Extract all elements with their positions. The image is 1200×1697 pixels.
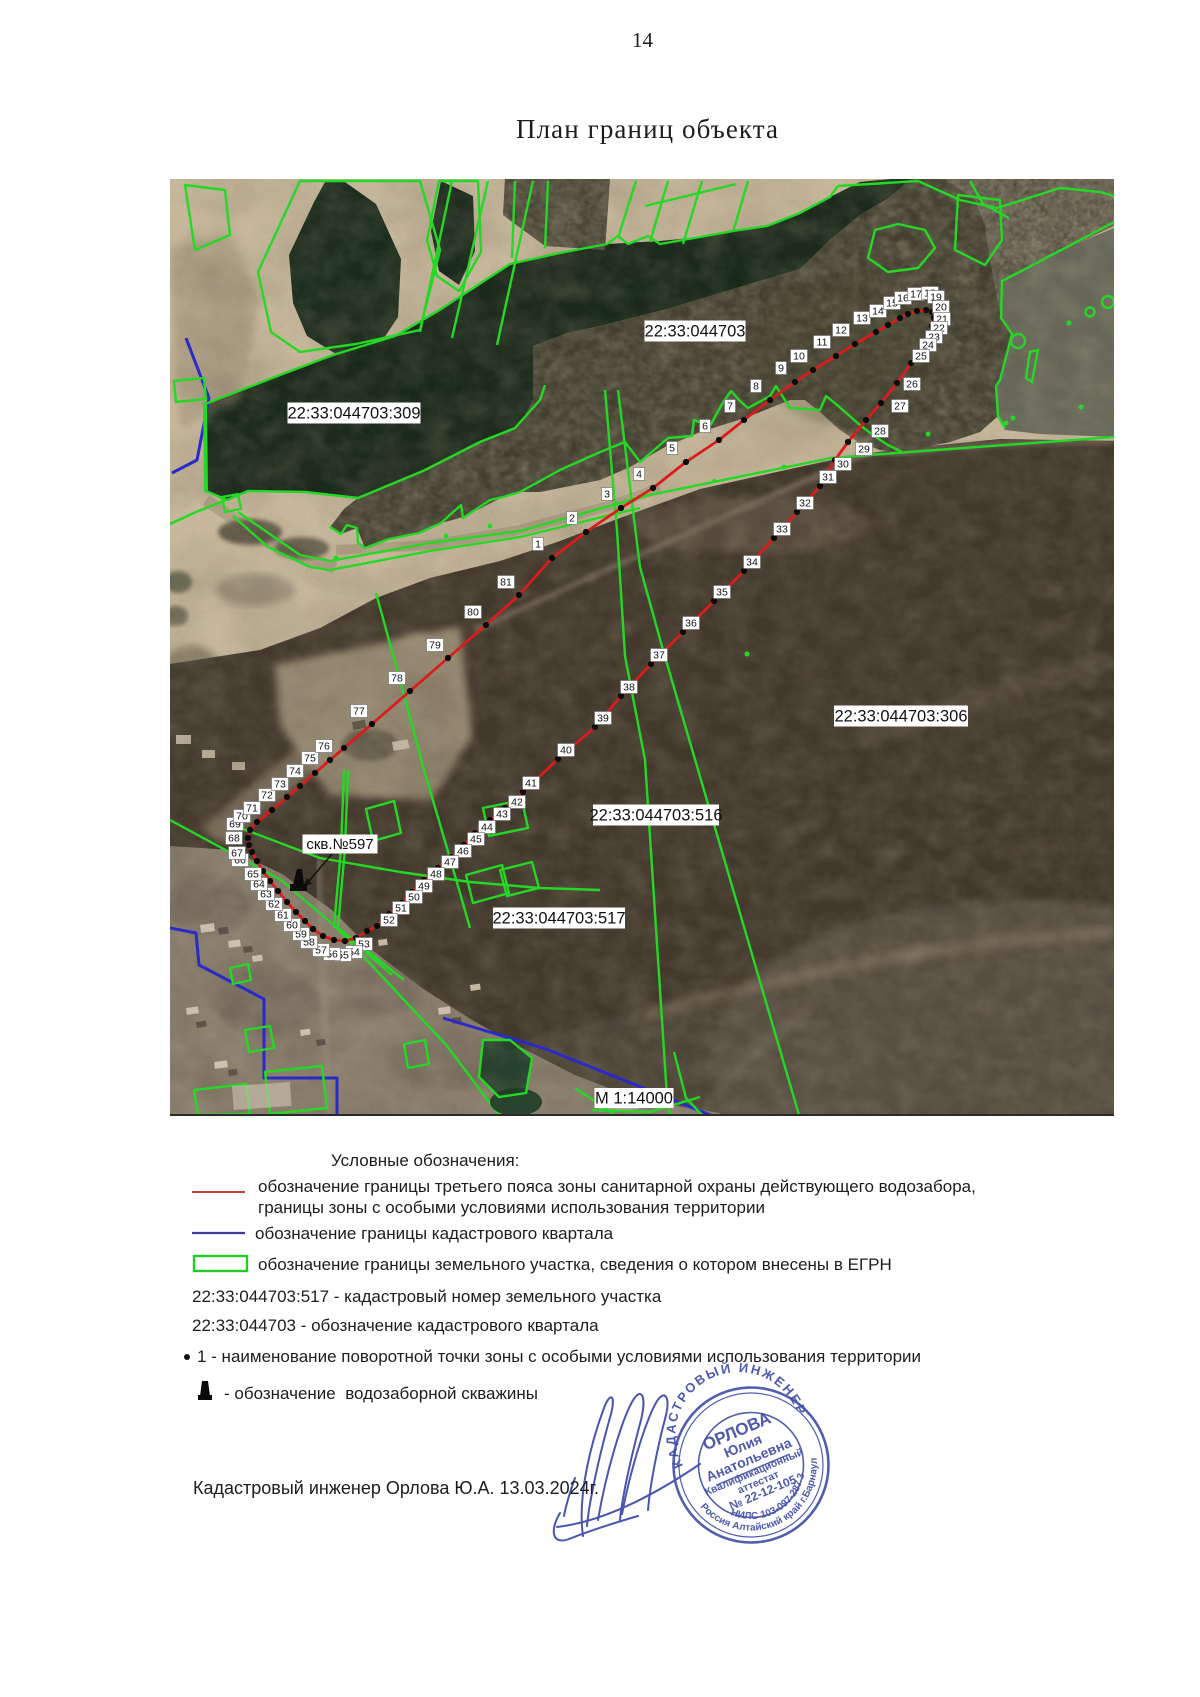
svg-text:11: 11 (817, 337, 828, 349)
svg-text:6: 6 (702, 421, 708, 433)
svg-text:9: 9 (778, 363, 784, 375)
svg-text:32: 32 (799, 498, 811, 510)
svg-text:67: 67 (231, 848, 243, 860)
svg-text:79: 79 (429, 640, 441, 652)
svg-text:73: 73 (274, 779, 286, 791)
svg-text:78: 78 (391, 673, 403, 685)
svg-text:38: 38 (623, 682, 635, 694)
svg-text:22:33:044703: 22:33:044703 (645, 323, 746, 341)
svg-text:22:33:044703:309: 22:33:044703:309 (287, 405, 420, 423)
svg-text:34: 34 (746, 557, 758, 569)
svg-text:46: 46 (457, 846, 469, 858)
svg-text:42: 42 (511, 797, 523, 809)
svg-text:41: 41 (525, 778, 537, 790)
svg-text:44: 44 (481, 822, 493, 834)
svg-text:2: 2 (569, 513, 575, 525)
svg-text:31: 31 (822, 472, 834, 484)
svg-text:26: 26 (906, 379, 918, 391)
svg-text:47: 47 (444, 857, 456, 869)
svg-text:81: 81 (500, 577, 512, 589)
svg-text:50: 50 (408, 892, 420, 904)
svg-text:33: 33 (776, 524, 788, 536)
svg-text:22:33:044703:517: 22:33:044703:517 (492, 910, 625, 928)
svg-text:20: 20 (935, 302, 947, 314)
svg-text:39: 39 (597, 713, 609, 725)
svg-text:43: 43 (496, 809, 508, 821)
svg-text:М 1:14000: М 1:14000 (595, 1090, 673, 1108)
svg-text:40: 40 (560, 745, 572, 757)
svg-text:12: 12 (835, 325, 847, 337)
svg-text:36: 36 (685, 618, 697, 630)
svg-text:22:33:044703:306: 22:33:044703:306 (834, 708, 967, 726)
svg-text:7: 7 (727, 401, 733, 413)
svg-text:52: 52 (383, 915, 395, 927)
svg-text:71: 71 (246, 803, 258, 815)
svg-text:45: 45 (470, 834, 482, 846)
svg-text:22:33:044703:516: 22:33:044703:516 (589, 807, 722, 825)
svg-text:37: 37 (653, 650, 665, 662)
svg-text:75: 75 (304, 753, 316, 765)
svg-text:8: 8 (753, 381, 759, 393)
svg-text:48: 48 (430, 869, 442, 881)
svg-text:27: 27 (894, 401, 906, 413)
svg-text:74: 74 (289, 766, 301, 778)
svg-text:14: 14 (872, 306, 884, 318)
svg-text:25: 25 (915, 351, 927, 363)
svg-text:30: 30 (837, 459, 849, 471)
svg-text:4: 4 (636, 469, 642, 481)
svg-text:28: 28 (874, 426, 886, 438)
svg-text:29: 29 (858, 444, 870, 456)
svg-text:17: 17 (910, 289, 922, 301)
svg-text:76: 76 (318, 741, 330, 753)
svg-text:65: 65 (247, 869, 259, 881)
svg-text:51: 51 (395, 903, 407, 915)
svg-text:13: 13 (856, 313, 868, 325)
svg-text:3: 3 (604, 489, 610, 501)
svg-text:1: 1 (535, 539, 541, 551)
svg-text:61: 61 (277, 910, 289, 922)
svg-text:5: 5 (669, 443, 675, 455)
svg-text:35: 35 (716, 587, 728, 599)
svg-text:10: 10 (793, 351, 805, 363)
svg-text:77: 77 (353, 706, 365, 718)
svg-text:80: 80 (467, 607, 479, 619)
svg-text:68: 68 (228, 833, 240, 845)
svg-text:скв.№597: скв.№597 (306, 836, 373, 853)
svg-text:72: 72 (261, 790, 273, 802)
